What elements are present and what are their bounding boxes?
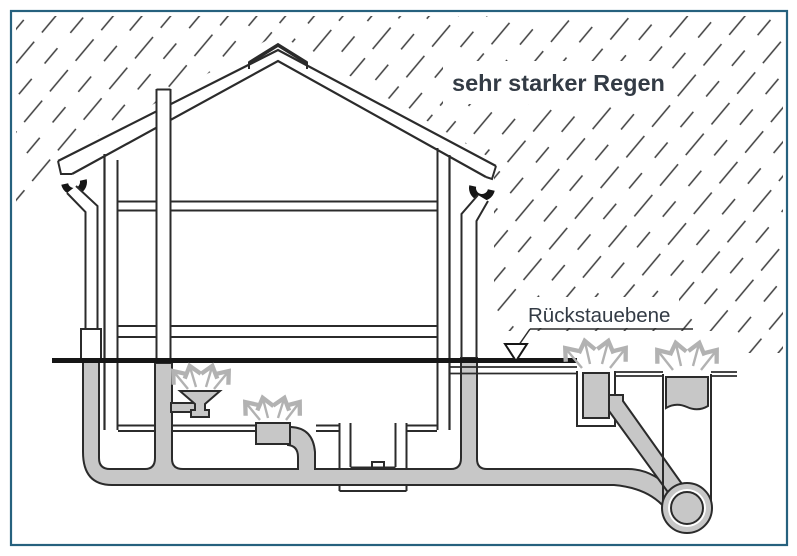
ground-strip-mask [494, 331, 737, 353]
vent-stack [156, 89, 171, 359]
backflow-level-label: Rückstauebene [528, 304, 670, 327]
floor-drain [256, 423, 290, 444]
rain-hatching [15, 16, 783, 353]
rain-label: sehr starker Regen [452, 70, 665, 96]
standpipe-left [81, 329, 101, 362]
manhole-backflow-water [666, 377, 708, 409]
sewer-main [662, 483, 712, 533]
pit-drain-fitting [372, 462, 384, 468]
diagram-canvas: sehr starker Regen Rückstauebene [0, 0, 797, 556]
gully-backflow-water [583, 373, 609, 418]
sewer-water [671, 492, 703, 524]
backflow-diagram-figure: sehr starker Regen Rückstauebene [0, 0, 797, 556]
